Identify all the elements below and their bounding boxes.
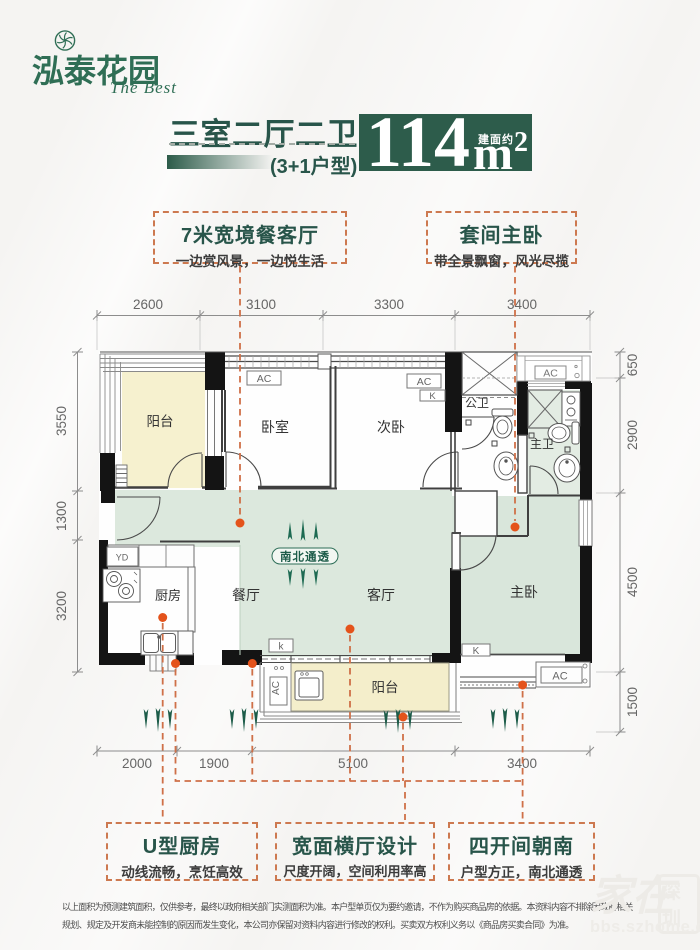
svg-text:K: K (473, 646, 480, 657)
svg-text:K: K (429, 391, 436, 402)
svg-text:AC: AC (257, 373, 272, 385)
svg-text:南北通透: 南北通透 (280, 550, 330, 564)
svg-text:650: 650 (625, 354, 640, 377)
svg-text:2900: 2900 (625, 420, 640, 450)
svg-text:1500: 1500 (625, 687, 640, 717)
svg-text:餐厅: 餐厅 (232, 587, 260, 603)
svg-text:主卫: 主卫 (530, 437, 554, 451)
svg-text:阳台: 阳台 (372, 680, 399, 695)
svg-text:3550: 3550 (54, 406, 69, 436)
svg-text:AC: AC (552, 671, 567, 683)
svg-text:AC: AC (543, 368, 558, 380)
svg-text:1900: 1900 (199, 756, 229, 771)
svg-text:卧室: 卧室 (261, 419, 289, 435)
svg-text:2600: 2600 (133, 297, 163, 312)
svg-text:2000: 2000 (122, 756, 152, 771)
svg-text:3100: 3100 (246, 297, 276, 312)
svg-text:3300: 3300 (374, 297, 404, 312)
svg-text:阳台: 阳台 (147, 414, 174, 429)
svg-text:厨房: 厨房 (155, 588, 181, 603)
svg-text:客厅: 客厅 (367, 587, 395, 603)
svg-text:公卫: 公卫 (465, 396, 489, 410)
svg-text:次卧: 次卧 (377, 419, 405, 435)
svg-text:AC: AC (271, 681, 282, 695)
svg-text:3200: 3200 (54, 591, 69, 621)
svg-text:5100: 5100 (338, 756, 368, 771)
svg-text:3400: 3400 (507, 297, 537, 312)
svg-text:1300: 1300 (54, 501, 69, 531)
svg-text:AC: AC (417, 376, 432, 388)
svg-text:YD: YD (116, 553, 129, 563)
svg-text:4500: 4500 (625, 567, 640, 597)
svg-text:主卧: 主卧 (510, 584, 538, 600)
